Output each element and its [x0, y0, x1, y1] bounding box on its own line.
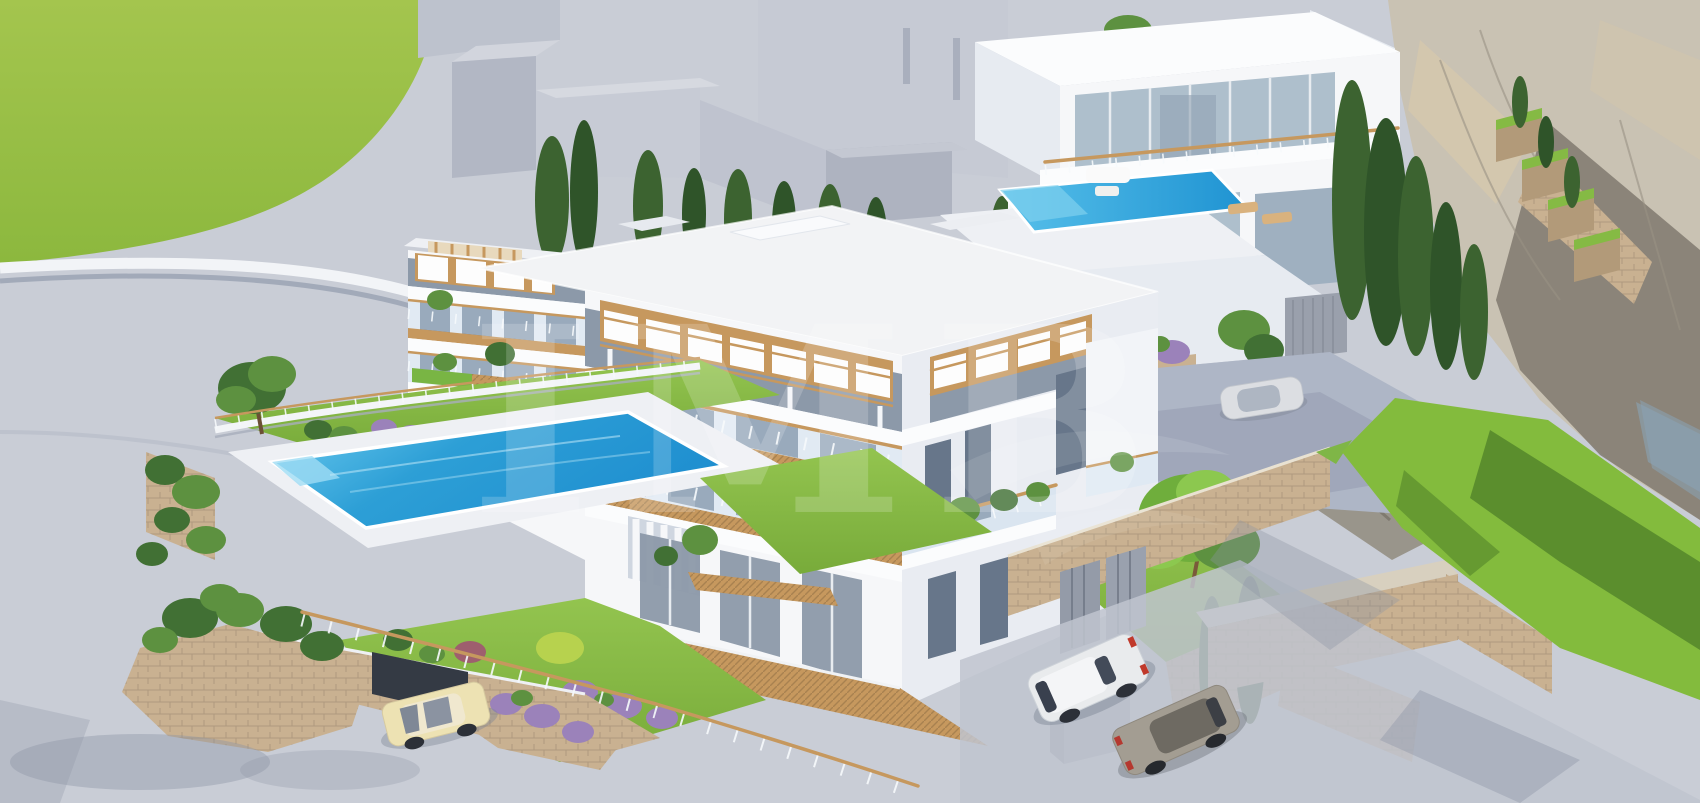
architectural-render: IMB: [0, 0, 1700, 803]
villa-garage-door: [1285, 292, 1347, 360]
watermark: IMB: [470, 270, 1230, 573]
yellow-bush: [536, 632, 584, 664]
villa-sofa: [1086, 167, 1130, 183]
render-canvas: IMB: [0, 0, 1700, 803]
